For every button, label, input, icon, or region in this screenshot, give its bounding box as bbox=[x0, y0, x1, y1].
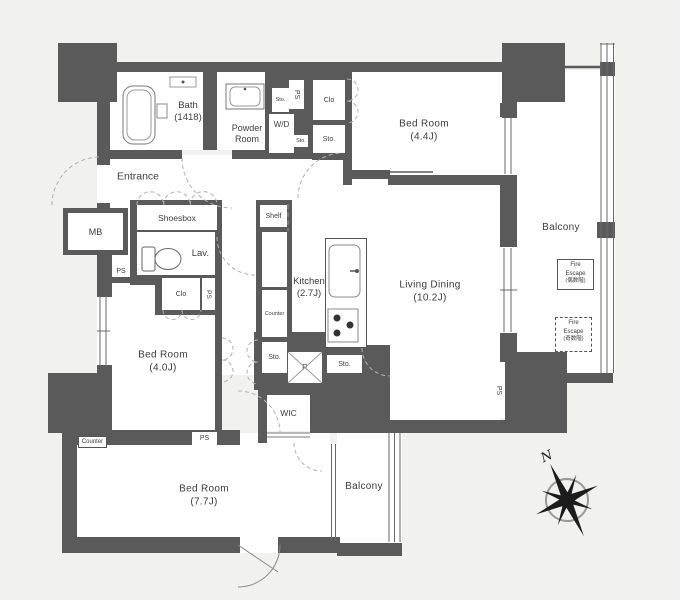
pipe-space-box: PS bbox=[192, 432, 217, 445]
entrance-label: Entrance bbox=[117, 170, 159, 183]
bedroom-77-label: Bed Room (7.7J) bbox=[179, 484, 229, 509]
pipe-space-box: PS bbox=[202, 278, 215, 310]
storage-box: Sto. bbox=[313, 125, 345, 153]
lavatory-floor: Lav. bbox=[137, 232, 215, 275]
wall bbox=[110, 150, 182, 159]
living-dining-label: Living Dining (10.2J) bbox=[399, 280, 460, 305]
room-name: Kitchen bbox=[293, 276, 325, 288]
cabinet-box bbox=[262, 232, 287, 287]
bedroom-44-label: Bed Room (4.4J) bbox=[399, 119, 449, 144]
room-name: Bed Room bbox=[138, 350, 188, 363]
compass-icon: N bbox=[509, 434, 618, 552]
meter-box-label: MB bbox=[89, 227, 103, 237]
wall bbox=[337, 543, 402, 556]
bedroom-40-label: Bed Room (4.0J) bbox=[138, 350, 188, 375]
storage-label: Sto. bbox=[338, 361, 350, 368]
wall bbox=[500, 175, 517, 247]
shelf-label: Shelf bbox=[266, 213, 282, 220]
window-living bbox=[500, 247, 517, 333]
room-name: Room bbox=[232, 134, 263, 145]
balcony-bottom-label: Balcony bbox=[345, 481, 383, 494]
wall bbox=[517, 373, 613, 383]
balcony-right-label: Balcony bbox=[542, 222, 580, 235]
wall bbox=[203, 72, 217, 150]
room-size: (4.0J) bbox=[138, 362, 188, 375]
storage-box: Sto. bbox=[327, 355, 362, 373]
pipe-space-box: PS bbox=[289, 80, 304, 109]
wall bbox=[327, 373, 390, 433]
storage-label: Sto. bbox=[296, 138, 306, 144]
wall bbox=[345, 170, 390, 179]
pipe-space-label: PS bbox=[200, 435, 209, 442]
room-name: Balcony bbox=[542, 222, 580, 233]
compass-north-label: N bbox=[538, 447, 556, 466]
wall bbox=[97, 90, 110, 165]
closet-box: Clo bbox=[162, 278, 200, 310]
room-size: (4.4J) bbox=[399, 131, 449, 144]
closet-label: Clo bbox=[176, 291, 187, 298]
closet-box: Clo bbox=[313, 80, 345, 120]
wall bbox=[110, 62, 502, 72]
storage-box: Sto. bbox=[294, 135, 308, 147]
room-name: Entrance bbox=[117, 170, 159, 182]
floor-railing-bottom bbox=[388, 432, 402, 543]
storage-box: Sto. bbox=[262, 342, 287, 373]
room-name: Balcony bbox=[345, 481, 383, 492]
room-size: (10.2J) bbox=[399, 292, 460, 305]
window-bedroom-40 bbox=[97, 295, 110, 367]
wall bbox=[388, 175, 502, 185]
shelf-box: Shelf bbox=[260, 205, 287, 227]
room-name: Bed Room bbox=[399, 119, 449, 132]
pipe-space-label: PS bbox=[116, 268, 125, 275]
washer-dryer-box: W/D bbox=[269, 114, 294, 153]
room-name: Bath bbox=[174, 100, 201, 112]
pipe-space-label: PS bbox=[293, 90, 300, 99]
floor-doorway-patch bbox=[238, 433, 330, 443]
shoesbox-label: Shoesbox bbox=[158, 213, 196, 223]
railing-post bbox=[597, 222, 615, 238]
closet-label: Clo bbox=[324, 97, 335, 104]
counter-box: Counter bbox=[262, 290, 287, 337]
powder-room-label: Powder Room bbox=[232, 123, 263, 146]
fire-escape-line: Fire bbox=[558, 261, 593, 270]
railing-post bbox=[600, 62, 615, 76]
pipe-space-box: PS bbox=[492, 362, 505, 418]
counter-label: Counter bbox=[265, 311, 285, 317]
wic-floor: WIC bbox=[267, 395, 310, 431]
wall bbox=[258, 373, 267, 443]
kitchen-label: Kitchen (2.7J) bbox=[293, 276, 325, 300]
storage-box: Sto. bbox=[272, 88, 289, 112]
refrigerator-label: R bbox=[302, 363, 308, 372]
pipe-space-box: PS bbox=[112, 265, 130, 277]
entrance-door-recess bbox=[97, 163, 110, 205]
window-bedroom-44 bbox=[502, 117, 517, 175]
fire-escape-lower: Fire Escape (奇数階) bbox=[555, 317, 592, 352]
floor-railing-right bbox=[600, 43, 615, 373]
wall bbox=[310, 385, 327, 433]
counter-label: Counter bbox=[82, 439, 103, 445]
wall bbox=[502, 102, 517, 118]
storage-label: Sto. bbox=[323, 136, 335, 143]
fire-escape-upper: Fire Escape (偶数階) bbox=[557, 259, 594, 290]
fire-escape-line: Fire bbox=[556, 319, 591, 328]
room-size: (7.7J) bbox=[179, 496, 229, 509]
room-name: Bed Room bbox=[179, 484, 229, 497]
storage-label: Sto. bbox=[276, 97, 286, 103]
wic-label: WIC bbox=[280, 408, 297, 418]
refrigerator-box: R bbox=[288, 352, 322, 383]
room-size: (1418) bbox=[174, 112, 201, 124]
bottom-door-recess bbox=[238, 537, 280, 553]
shoesbox: Shoesbox bbox=[137, 205, 217, 230]
fire-escape-line: (偶数階) bbox=[558, 278, 593, 286]
wall bbox=[62, 537, 240, 553]
lavatory-label: Lav. bbox=[192, 248, 209, 259]
meter-box: MB bbox=[68, 213, 123, 250]
wall bbox=[505, 352, 567, 420]
washer-dryer-label: W/D bbox=[274, 120, 290, 129]
room-name: Powder bbox=[232, 123, 263, 134]
pipe-space-label: PS bbox=[495, 385, 502, 394]
wall bbox=[48, 373, 112, 433]
fire-escape-line: (奇数階) bbox=[556, 336, 591, 344]
bath-label: Bath (1418) bbox=[174, 100, 201, 124]
room-name: Living Dining bbox=[399, 280, 460, 293]
window-bedroom-77 bbox=[330, 443, 337, 543]
counter-box: Counter bbox=[78, 436, 107, 448]
floor-plan: MB Sto. PS W/D Sto. Clo Sto. Shelf Count… bbox=[0, 0, 680, 600]
pipe-space-label: PS bbox=[205, 290, 212, 299]
wall bbox=[502, 43, 565, 102]
wall bbox=[62, 430, 77, 553]
storage-label: Sto. bbox=[268, 354, 280, 361]
kitchen-unit bbox=[325, 238, 367, 348]
entrance-door-arc bbox=[52, 157, 100, 205]
wall bbox=[278, 537, 340, 553]
room-size: (2.7J) bbox=[293, 288, 325, 300]
